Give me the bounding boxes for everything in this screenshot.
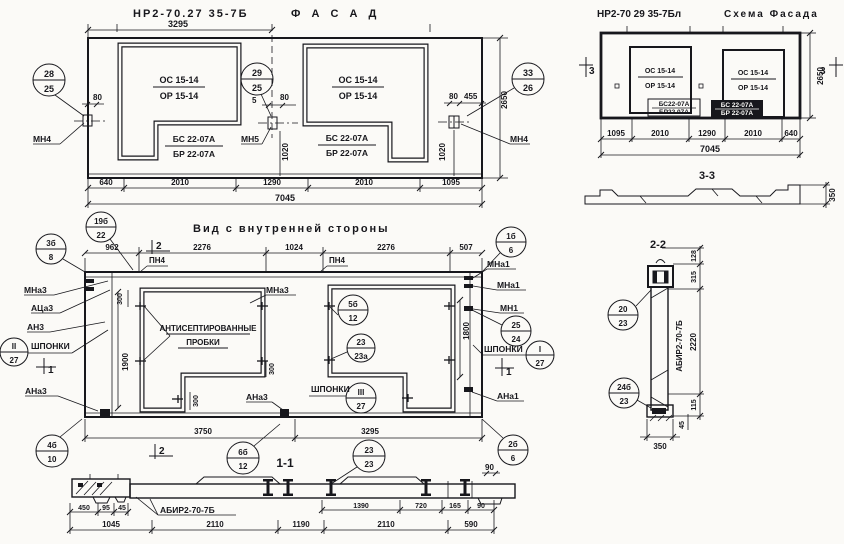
schema-title-word: Схема Фасада [724,9,819,20]
svg-text:1190: 1190 [292,520,310,529]
facade-opening-2: ОС 15-14 ОР 15-14 БС 22-07А БР 22-07А [305,46,426,160]
dim-3295: 3295 [168,19,188,29]
svg-text:2110: 2110 [206,520,224,529]
svg-text:1б: 1б [506,232,515,241]
view-top-dimensions: 962 2276 1024 2276 507 [82,243,485,272]
view-left-labels: МНа3 АЦа3 АН3 ШПОНКИ II 27 1 АНа3 [0,281,110,411]
dim-1020-right: 1020 [438,143,447,161]
sill1-mark-bottom: БР 22-07А [173,149,215,159]
callout-II-27: II 27 [0,338,28,366]
schema-title-code: НР2-70 29 35-7Бл [597,9,681,20]
svg-text:20: 20 [619,305,628,314]
dim-7045: 7045 [700,144,720,154]
callout-28-25: 28 25 [33,64,84,116]
section-2-2-body [651,287,668,410]
svg-text:23: 23 [365,446,374,455]
dim-640: 640 [784,129,798,138]
window-mark: ОР 15-14 [645,83,675,90]
dim-80-left: 80 [93,93,102,102]
label-shponki-right: ШПОНКИ [484,344,523,354]
window1-mark-top: ОС 15-14 [159,75,198,85]
label-mn5: МН5 [241,134,259,144]
window-mark: ОС 15-14 [738,70,768,77]
svg-text:1045: 1045 [102,520,120,529]
svg-text:8: 8 [49,253,54,262]
label-aca3: АЦа3 [31,303,53,313]
sill2-mark-bottom: БР 22-07А [326,148,368,158]
svg-text:23а: 23а [354,352,368,361]
dim-2650: 2650 [500,91,509,109]
section-1-1-slab [130,484,515,498]
svg-text:6б: 6б [238,448,247,457]
window-mark: ОР 15-14 [738,85,768,92]
window1-mark-bottom: ОР 15-14 [160,91,199,101]
svg-text:24б: 24б [617,383,631,392]
dim-90-vertical: 90 [482,463,500,476]
label-abir-2-2: АБИР2-70-7Б [675,320,684,372]
facade-drawing: НР2-70.27 35-7Б Ф А С А Д 3295 ОС 15-14 … [33,8,544,208]
callout-num: 28 [44,69,54,79]
sill2-mark-top: БС 22-07А [326,133,368,143]
section-3-3-label: 3-3 [699,170,715,182]
schema-drawing: НР2-70 29 35-7Бл Схема Фасада ОС 15-14 О… [579,9,843,158]
facade-top-dimension: 3295 [85,19,430,38]
sill-mark: БР 22-07А [721,110,753,117]
blueprint-page: НР2-70.27 35-7Б Ф А С А Д 3295 ОС 15-14 … [0,0,844,544]
dim-3295: 3295 [361,427,379,436]
label-shponki-mid: ШПОНКИ [311,384,350,394]
section-1-1: 90 АБИР2-70-7Б 450 95 45 1390 720 165 90 [67,463,515,534]
dim-300-mid: 300 [269,363,276,375]
label-antiseptic-plugs-2: ПРОБКИ [186,338,220,347]
svg-text:II: II [12,342,16,351]
sill-mark: БС 22-07А [721,102,754,109]
section-3-3: 3-3 350 [585,170,837,208]
svg-text:95: 95 [102,505,110,512]
svg-text:2: 2 [159,446,165,457]
svg-text:23: 23 [357,338,366,347]
callout-4b-10: 4б 10 [36,419,82,467]
dim-1095: 1095 [607,129,625,138]
callout-20-23: 20 23 [608,290,651,330]
svg-text:45: 45 [118,505,126,512]
view-marker-2-top: 2 [146,240,170,254]
svg-text:590: 590 [464,520,478,529]
callout-6b-12: 6б 12 [227,424,280,474]
callout-24b-23: 24б 23 [609,378,651,408]
section-1-1-dims-row1-left: 450 95 45 [67,503,131,534]
svg-text:10: 10 [48,455,57,464]
dim-2010: 2010 [171,178,189,187]
svg-text:12: 12 [239,462,248,471]
section-2-2-label: 2-2 [650,239,666,251]
svg-text:27: 27 [10,356,19,365]
sill1-mark-top: БС 22-07А [173,134,215,144]
dim-315: 315 [691,271,698,283]
dim-507: 507 [459,243,473,252]
dim-128: 128 [691,250,698,262]
dim-455-right: 455 [464,92,478,101]
view-marker-2-bottom: 2 [149,444,173,459]
dim-300-bottom-leg: 300 [193,395,200,407]
profile-3-3 [585,185,800,204]
callout-den: 25 [44,84,54,94]
dim-5-mid: 5 [252,96,257,105]
marker-2: 2 [156,241,162,252]
dim-2010b: 2010 [744,129,762,138]
svg-text:90: 90 [477,503,485,510]
svg-text:5б: 5б [348,300,357,309]
svg-text:23: 23 [619,319,628,328]
dim-7045: 7045 [275,193,295,203]
view-bottom-dimensions: 3750 3295 [82,419,485,442]
callout-num: 33 [523,68,533,78]
callout-25-24: 25 24 [472,310,531,346]
section-2-2-bottom-dim: 350 [640,419,680,451]
dim-3750: 3750 [194,427,212,436]
label-mna3: МНа3 [24,285,47,295]
dim-2010: 2010 [651,129,669,138]
svg-text:2б: 2б [508,440,517,449]
svg-text:22: 22 [97,231,106,240]
lifting-loop [656,260,665,264]
sill-mark: БС22-07А [659,101,690,108]
window2-mark-bottom: ОР 15-14 [339,91,378,101]
label-pn4-left: ПН4 [149,256,166,265]
dim-1290: 1290 [263,178,281,187]
label-mna1: МНа1 [497,280,520,290]
dim-962: 962 [105,243,119,252]
label-abir-1-1: АБИР2-70-7Б [160,505,215,515]
svg-text:12: 12 [349,314,358,323]
top-channel [648,266,673,287]
view-marker-1-right: 1 [495,358,514,378]
svg-text:6: 6 [509,246,514,255]
svg-text:1390: 1390 [353,503,369,510]
label-mn1: МН1 [500,303,518,313]
callout-III-27: III 27 [346,383,376,413]
dim-2220: 2220 [689,333,698,351]
svg-text:2110: 2110 [377,520,395,529]
dim-2276: 2276 [193,243,211,252]
callout-2b-6: 2б 6 [482,419,528,465]
facade-height-dimension: 2650 [482,35,509,181]
dim-1020-mid: 1020 [281,143,290,161]
ibeam-details [263,479,470,496]
schema-sill-box-2-highlighted: БС 22-07А БР 22-07А [711,100,763,117]
callout-3b-8: 3б 8 [36,234,85,272]
dim-80-right: 80 [449,92,458,101]
svg-text:25: 25 [512,321,521,330]
dim-1024: 1024 [285,243,303,252]
svg-text:3б: 3б [46,239,55,248]
view-title: Вид с внутренней стороны [193,223,390,235]
view-opening-1: АНТИСЕПТИРОВАННЫЕ ПРОБКИ [142,290,263,410]
window2-mark-top: ОС 15-14 [338,75,377,85]
dim-80-mid: 80 [280,93,289,102]
schema-section-marker-left: 3 [579,57,595,77]
inner-view-drawing: Вид с внутренней стороны 962 2276 1024 2… [0,212,554,484]
callout-den: 25 [252,83,262,93]
svg-text:27: 27 [536,359,545,368]
facade-bottom-dimensions: 640 2010 1290 2010 1095 7045 [85,178,485,208]
svg-text:165: 165 [449,503,461,510]
svg-text:23: 23 [620,397,629,406]
schema-height-dimension: 2650 [800,30,825,121]
label-mn4-left: МН4 [33,134,51,144]
svg-text:4б: 4б [47,441,56,450]
label-mna3-mid: МНа3 [266,285,289,295]
label-shponki-left: ШПОНКИ [31,341,70,351]
dim-2010b: 2010 [355,178,373,187]
view-right-labels: 1б 6 МНа1 МНа1 МН1 25 24 ШПОНКИ I 27 [472,227,554,401]
technical-drawing: НР2-70.27 35-7Б Ф А С А Д 3295 ОС 15-14 … [0,0,844,544]
dim-640: 640 [99,178,113,187]
label-pn4-mid: ПН4 [329,256,346,265]
svg-text:19б: 19б [94,217,108,226]
sill-mark: БР22 07А [659,109,689,116]
callout-den: 26 [523,83,533,93]
svg-text:23: 23 [365,460,374,469]
facade-title-code: НР2-70.27 35-7Б [133,8,249,20]
dim-350: 350 [653,442,667,451]
svg-text:I: I [539,345,541,354]
dim-1800: 1800 [462,322,471,340]
callout-29-25: 29 25 [241,63,273,116]
svg-text:90: 90 [485,463,494,472]
label-mna1: МНа1 [487,259,510,269]
callout-19b-22: 19б 22 [86,212,133,270]
section-1-1-label: 1-1 [276,456,294,470]
section-2-2: 2-2 АБИР2-70-7Б 128 315 2220 115 45 [608,239,704,451]
marker-3: 3 [589,66,595,77]
dim-115: 115 [691,399,698,410]
svg-text:1: 1 [506,367,512,378]
section-1-1-left-block [72,474,130,503]
svg-text:1: 1 [48,365,54,376]
dim-2276b: 2276 [377,243,395,252]
dim-1095: 1095 [442,178,460,187]
section-1-1-dims-row2: 1045 2110 1190 2110 590 [67,520,497,534]
label-an3: АН3 [27,322,44,332]
dim-1900: 1900 [121,353,130,371]
label-antiseptic-plugs-1: АНТИСЕПТИРОВАННЫЕ [159,324,257,333]
dim-350-schema: 350 [828,188,837,202]
svg-text:720: 720 [415,503,427,510]
window-mark: ОС 15-14 [645,68,675,75]
svg-text:24: 24 [512,335,521,344]
svg-text:27: 27 [357,402,366,411]
label-ana3-left: АНа3 [25,386,47,396]
dim-45: 45 [679,421,686,429]
dim-1290: 1290 [698,129,716,138]
callout-num: 29 [252,68,262,78]
schema-bottom-dimensions: 1095 2010 1290 2010 640 7045 [598,118,803,158]
svg-text:6: 6 [511,454,516,463]
label-mn4-right: МН4 [510,134,528,144]
label-ana1: АНа1 [497,391,519,401]
svg-text:III: III [358,388,365,397]
facade-opening-1: ОС 15-14 ОР 15-14 БС 22-07А БР 22-07А [120,45,239,159]
svg-text:450: 450 [78,505,90,512]
view-marker-1-left: 1 [36,358,56,376]
dim-2650-schema: 2650 [816,67,825,85]
facade-title-word: Ф А С А Д [291,8,380,20]
label-ana3-mid: АНа3 [246,392,268,402]
callout-I-27: I 27 [526,341,554,369]
